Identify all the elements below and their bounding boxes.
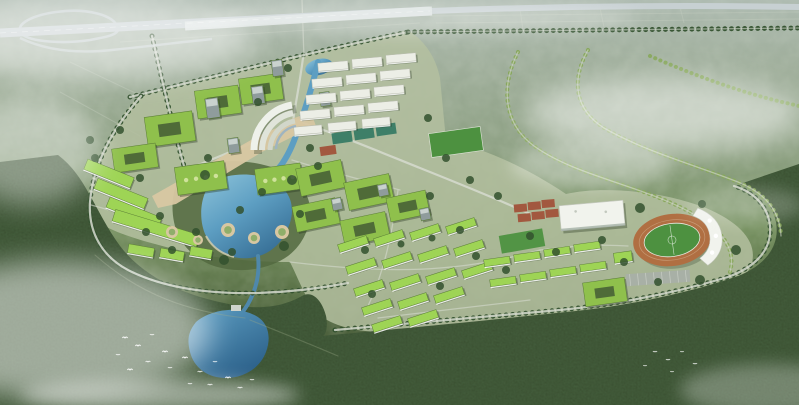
- garden-lawn: [251, 235, 258, 242]
- tree-clump: [142, 228, 150, 236]
- tree-clump: [156, 212, 164, 220]
- tree-clump: [552, 248, 560, 256]
- tree-clump: [472, 252, 480, 260]
- garden-lawn: [224, 226, 232, 234]
- campus-aerial-rendering: [0, 0, 799, 405]
- garden-lawn: [169, 229, 176, 236]
- gymnasium: [559, 200, 627, 234]
- tree-clump: [620, 258, 628, 266]
- court: [527, 201, 541, 210]
- tree-clump: [456, 226, 464, 234]
- tree-clump: [398, 241, 405, 248]
- tree-clump: [136, 174, 144, 182]
- tree-clump: [436, 282, 444, 290]
- court: [531, 211, 545, 220]
- cloud-right-small: [510, 141, 670, 189]
- tree-clump: [368, 290, 376, 298]
- tree-clump: [442, 154, 450, 162]
- tree-clump: [192, 228, 200, 236]
- tree-clump: [426, 192, 434, 200]
- tree-clump: [361, 246, 369, 254]
- tree-clump: [168, 246, 176, 254]
- tree-clump: [731, 245, 741, 255]
- tree-clump: [598, 236, 606, 244]
- tree-clump: [306, 144, 314, 152]
- tree-clump: [526, 232, 534, 240]
- tree-clump: [228, 248, 236, 256]
- tree-clump: [424, 114, 432, 122]
- court: [514, 203, 528, 212]
- court: [541, 199, 555, 208]
- tree-clump: [296, 210, 304, 218]
- rendering-canvas: [0, 0, 799, 405]
- tree-clump: [258, 188, 266, 196]
- tree-clump: [494, 192, 502, 200]
- court: [517, 213, 531, 222]
- haze-top-band: [200, 2, 640, 34]
- tree-clump: [695, 275, 705, 285]
- tree-clump: [654, 278, 662, 286]
- court: [545, 209, 559, 218]
- tree-clump: [429, 235, 436, 242]
- tree-clump: [219, 255, 229, 265]
- tree-clump: [635, 203, 645, 213]
- tree-clump: [287, 175, 297, 185]
- tree-clump: [116, 126, 124, 134]
- tree-clump: [314, 162, 322, 170]
- tree-clump: [279, 241, 289, 251]
- tree-clump: [466, 176, 474, 184]
- lakeside-pavilion: [231, 305, 241, 311]
- garden-lawn: [195, 237, 201, 243]
- tree-clump: [236, 206, 244, 214]
- tree-clump: [284, 64, 292, 72]
- cloud-top-right: [525, 77, 799, 153]
- tree-clump: [502, 266, 510, 274]
- tree-clump: [200, 170, 210, 180]
- tree-clump: [254, 98, 262, 106]
- tree-clump: [204, 154, 212, 162]
- garden-lawn: [278, 228, 286, 236]
